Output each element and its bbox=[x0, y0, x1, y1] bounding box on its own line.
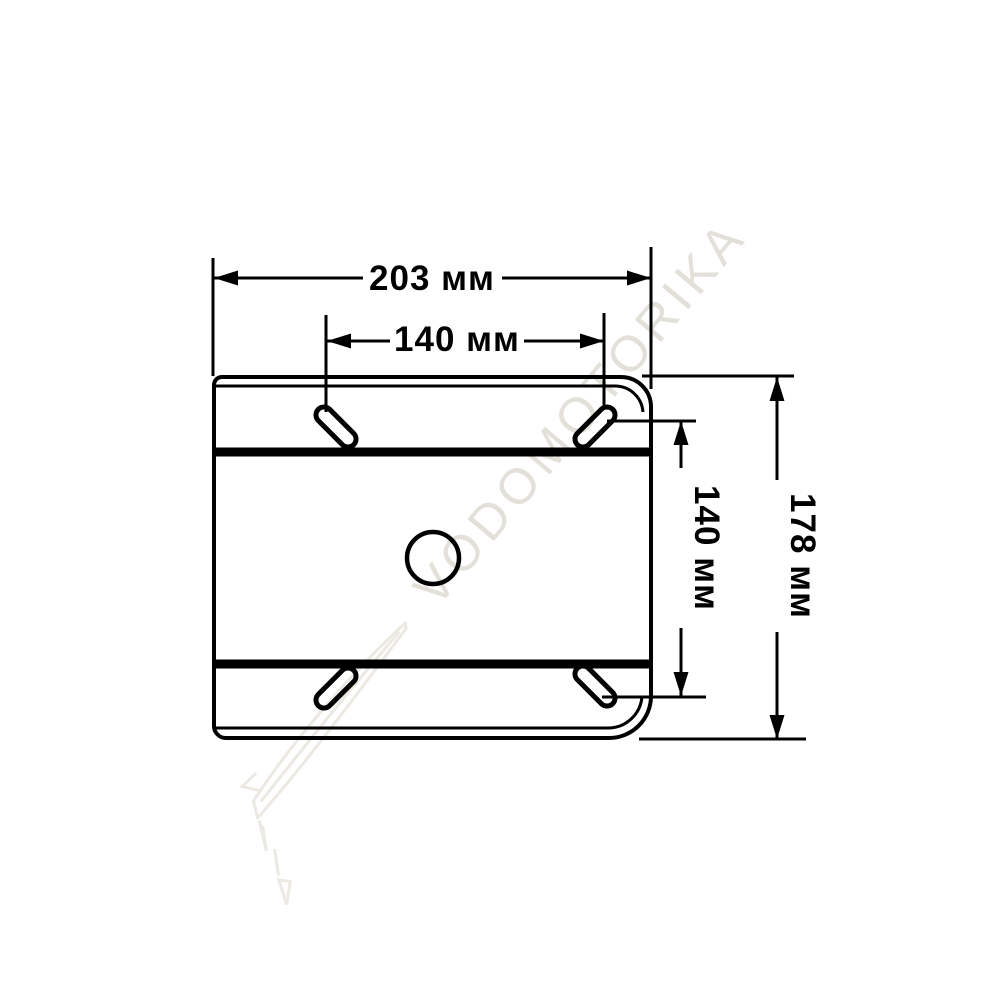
arrowhead bbox=[770, 377, 785, 401]
dim-slot-spacing-y: 140 мм bbox=[602, 421, 726, 697]
slot-bottom-left bbox=[313, 665, 360, 712]
center-hole bbox=[407, 532, 459, 584]
bottom-edge-hem-line bbox=[216, 696, 642, 728]
dim-label-slot-spacing-y: 140 мм bbox=[687, 485, 726, 611]
drawing-canvas: VODOMOTORIKA 203 мм bbox=[0, 0, 1000, 1000]
arrowhead bbox=[674, 421, 689, 445]
arrowhead bbox=[580, 334, 604, 349]
slot-top-right bbox=[572, 404, 619, 451]
arrowhead bbox=[674, 672, 689, 696]
arrowhead bbox=[627, 271, 651, 286]
arrowhead bbox=[327, 334, 351, 349]
plate-outline bbox=[214, 377, 651, 738]
arrowhead bbox=[214, 271, 238, 286]
dim-label-width-total: 203 мм bbox=[369, 259, 495, 298]
dim-height-total: 178 мм bbox=[639, 376, 822, 739]
slot-top-left bbox=[313, 404, 360, 451]
dim-width-total: 203 мм bbox=[213, 247, 651, 389]
dim-slot-spacing-x: 140 мм bbox=[326, 313, 604, 412]
top-edge-hem-line bbox=[216, 386, 643, 412]
arrowhead bbox=[770, 715, 785, 739]
slot-bottom-right bbox=[572, 663, 619, 710]
plate-drawing: 203 мм 140 мм 140 мм bbox=[0, 0, 1000, 1000]
dim-label-slot-spacing-x: 140 мм bbox=[394, 320, 520, 359]
dim-label-height-total: 178 мм bbox=[783, 493, 822, 619]
